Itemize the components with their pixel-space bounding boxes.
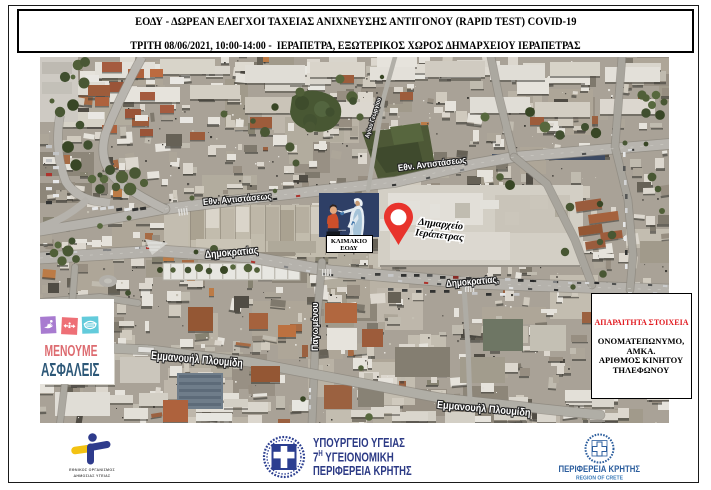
- svg-text:ΠΕΡΙΦΕΡΕΙΑ ΚΡΗΤΗΣ: ΠΕΡΙΦΕΡΕΙΑ ΚΡΗΤΗΣ: [559, 464, 641, 475]
- svg-text:REGION OF CRETE: REGION OF CRETE: [576, 476, 624, 482]
- svg-text:ΜΕΝΟΥΜΕ: ΜΕΝΟΥΜΕ: [45, 343, 98, 360]
- svg-text:ΑΣΦΑΛΕΙΣ: ΑΣΦΑΛΕΙΣ: [41, 360, 100, 380]
